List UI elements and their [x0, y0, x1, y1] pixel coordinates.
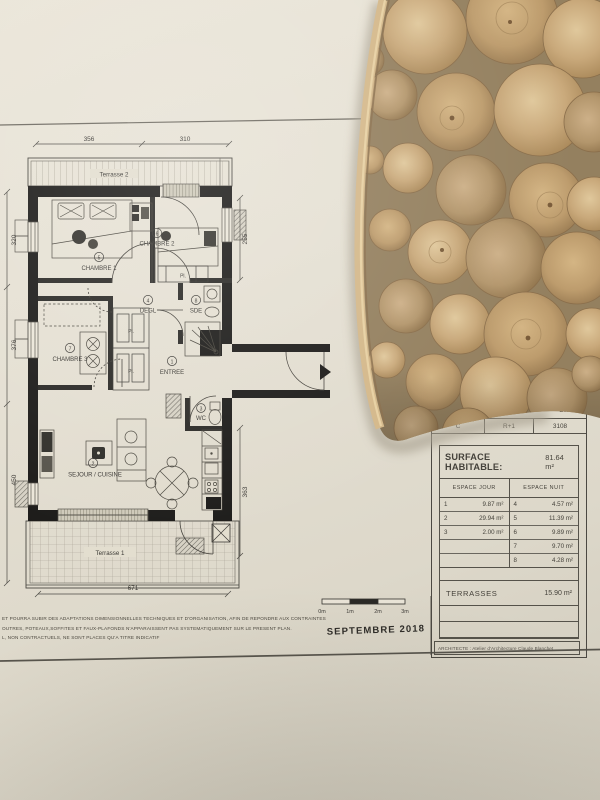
table-row: 84.28 m² — [510, 554, 579, 567]
wood-slice-decor — [340, 0, 600, 470]
photo-of-floor-plan: Terrasse 2 Terrasse 1 — [0, 0, 600, 800]
table-row: 69.89 m² — [510, 526, 579, 540]
terrace-top: Terrasse 2 — [28, 158, 232, 186]
room-num-chambre2: 6 — [156, 231, 159, 237]
dim-left-upper: 320 — [11, 234, 18, 245]
dim-right-lower: 363 — [242, 486, 249, 497]
table-row: 32.00 m² — [440, 526, 509, 540]
espace-jour-column: ESPACE JOUR 19.87 m² 229.94 m² 32.00 m² — [440, 479, 510, 567]
terrasses-row: TERRASSES 15.90 m² — [440, 581, 578, 606]
scale-1m: 1m — [346, 609, 354, 615]
empty-row — [440, 622, 578, 638]
dim-left-middle: 376 — [11, 339, 18, 350]
terrasses-value: 15.90 m² — [544, 590, 572, 597]
table-row — [440, 554, 509, 567]
table-row: 511.39 m² — [510, 512, 579, 526]
room-label-entree: ENTREE — [160, 370, 184, 376]
surface-table: SURFACE HABITABLE: 81.64 m² ESPACE JOUR … — [439, 445, 579, 639]
room-label-degl: DEGL — [140, 309, 157, 315]
closet-label-1: Pl. — [128, 329, 134, 335]
room-label-chambre3: CHAMBRE 3 — [52, 357, 88, 363]
scale-3m: 3m — [401, 609, 409, 615]
entrance-door-marker — [320, 364, 331, 380]
table-row: 44.57 m² — [510, 498, 579, 512]
table-row — [440, 540, 509, 554]
room-label-sde: SDE — [190, 309, 202, 315]
empty-band — [440, 568, 578, 581]
scale-bar: 0m 1m 2m 3m — [318, 599, 409, 615]
table-row: 79.70 m² — [510, 540, 579, 554]
espace-nuit-header: ESPACE NUIT — [510, 479, 579, 498]
fine-print-line-1: ET POURRA SUBIR DES ADAPTATIONS DIMENSIO… — [2, 614, 342, 624]
room-num-chambre3: 7 — [69, 346, 72, 352]
room-label-chambre1: CHAMBRE 1 — [81, 266, 117, 272]
room-num-chambre1: 5 — [98, 255, 101, 261]
espace-nuit-column: ESPACE NUIT 44.57 m² 511.39 m² 69.89 m² … — [510, 479, 579, 567]
room-num-entree: 1 — [171, 359, 174, 365]
table-row: 19.87 m² — [440, 498, 509, 512]
fine-print-line-3: L, NON CONTRACTUELS, NE SONT PLACES QU'A… — [2, 633, 342, 643]
room-num-degl: 4 — [147, 298, 150, 304]
room-num-sde: 8 — [195, 298, 198, 304]
architect-line: ARCHITECTE : Atelier d'Architecture Clau… — [434, 641, 580, 655]
table-row: 229.94 m² — [440, 512, 509, 526]
dim-left-lower: 450 — [11, 474, 18, 485]
dim-top-left: 356 — [84, 136, 95, 143]
room-label-sejour: SEJOUR / CUISINE — [68, 473, 122, 479]
terrace-bottom: Terrasse 1 — [26, 521, 239, 588]
terrace-1-label: Terrasse 1 — [96, 550, 125, 557]
room-num-sejour: 2 — [92, 461, 95, 467]
terrasses-label: TERRASSES — [446, 589, 497, 598]
closet-label-3: Pl. — [180, 274, 186, 280]
scale-2m: 2m — [374, 609, 382, 615]
furniture — [40, 200, 222, 510]
room-label-wc: WC — [196, 416, 207, 422]
empty-row — [440, 606, 578, 622]
room-num-wc: 3 — [200, 406, 203, 412]
terrace-2-label: Terrasse 2 — [100, 172, 129, 179]
surface-columns: ESPACE JOUR 19.87 m² 229.94 m² 32.00 m² … — [440, 479, 578, 568]
closet-label-2: Pl. — [128, 369, 134, 375]
dim-top-right: 310 — [180, 136, 191, 143]
dim-right-upper: 255 — [242, 233, 249, 244]
dim-bottom: 671 — [128, 585, 139, 592]
fine-print: ET POURRA SUBIR DES ADAPTATIONS DIMENSIO… — [2, 614, 342, 643]
fine-print-line-2: OUTRES, POTEAUX,SOFFITES ET FAUX-PLAFOND… — [2, 624, 342, 634]
room-label-chambre2: CHAMBRE 2 — [139, 242, 175, 248]
espace-jour-header: ESPACE JOUR — [440, 479, 509, 498]
